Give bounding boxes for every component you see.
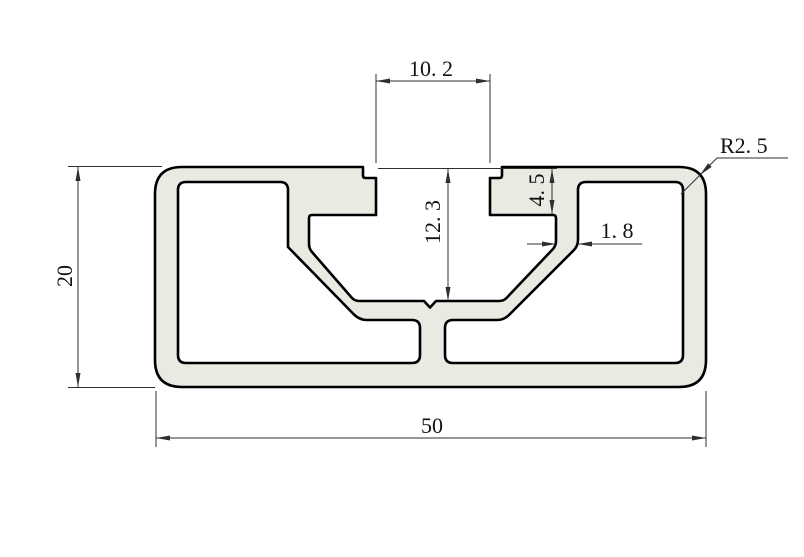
dimension-label: 1. 8 bbox=[601, 218, 634, 243]
dimension-wall-thickness: 1. 8 bbox=[527, 218, 642, 247]
dimension-slot-opening-width: 10. 2 bbox=[376, 56, 490, 163]
dimension-profile-height: 20 bbox=[52, 167, 162, 388]
dimension-profile-width: 50 bbox=[156, 391, 706, 447]
arrowhead-right-icon bbox=[476, 79, 490, 84]
arrowhead-down-icon bbox=[446, 287, 451, 301]
dimension-label: 4. 5 bbox=[524, 174, 549, 207]
dimension-label: R2. 5 bbox=[720, 133, 768, 158]
profile-drawing: 10. 2 12. 3 4. 5 1. 8 bbox=[0, 0, 804, 557]
dimension-label: 10. 2 bbox=[409, 56, 453, 81]
arrowhead-down-icon bbox=[76, 373, 81, 387]
arrowhead-left-icon bbox=[376, 79, 390, 84]
dimension-label: 50 bbox=[421, 413, 443, 438]
dimension-label: 12. 3 bbox=[420, 200, 445, 244]
arrowhead-up-icon bbox=[76, 167, 81, 181]
arrowhead-left-icon bbox=[578, 242, 592, 247]
dimension-label: 20 bbox=[52, 265, 77, 287]
arrowhead-up-icon bbox=[446, 169, 451, 183]
profile-cross-section bbox=[155, 167, 706, 387]
arrowhead-left-icon bbox=[156, 436, 170, 441]
technical-drawing-canvas: 10. 2 12. 3 4. 5 1. 8 bbox=[0, 0, 804, 557]
arrowhead-right-icon bbox=[692, 436, 706, 441]
